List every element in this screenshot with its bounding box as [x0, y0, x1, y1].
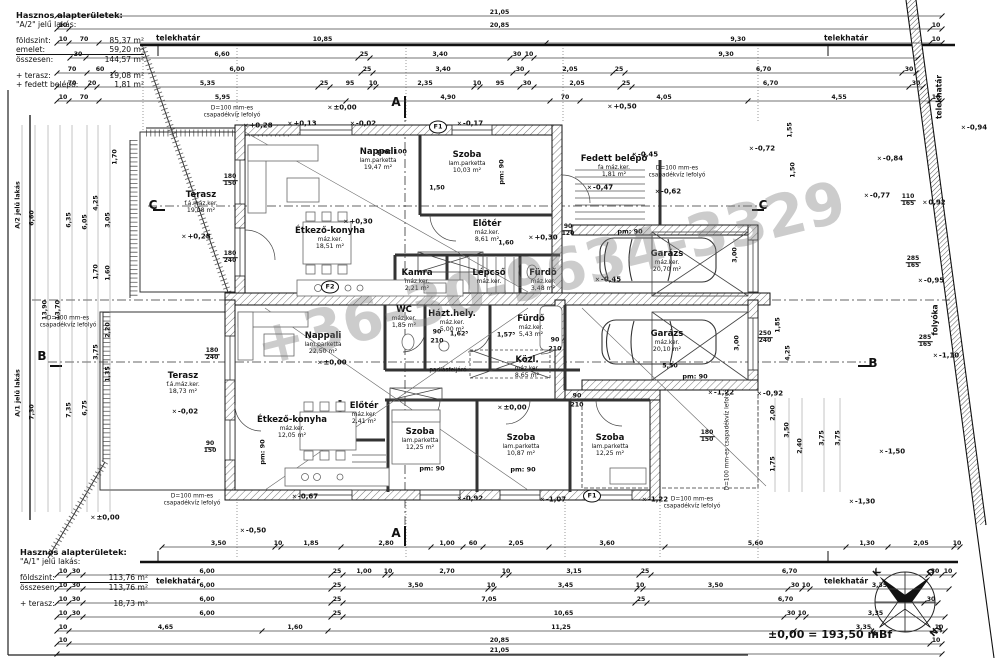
level-marker: ✕-0,17 — [457, 120, 483, 129]
annotation-210: 210 — [548, 345, 561, 352]
annotation-90: 90 — [573, 392, 582, 399]
area-row-value: 113,76 m² — [109, 583, 148, 592]
level-marker: ✕+0,50 — [607, 103, 636, 112]
annotation-1-50: 1,50 — [789, 162, 796, 178]
window-size-label: 90150 — [204, 441, 217, 455]
level-marker: ✕-0,77 — [864, 192, 890, 201]
room-rf: máz.ker. — [257, 426, 327, 433]
room-rf: lam.parketta — [448, 161, 485, 168]
room-ra: 19,47 m² — [359, 165, 396, 172]
room-rn: Előtér — [473, 220, 502, 230]
area-row-label: + terasz: — [20, 599, 55, 608]
annotation-pm-100: pm: 100 — [377, 148, 407, 155]
window-size-label: 180150 — [700, 430, 715, 444]
room-rn: Szoba — [591, 434, 628, 444]
annotation-d-100-mm-es: D=100 mm-es csapadékvíz lefolyó — [204, 105, 261, 118]
level-symbol-icon: ✕ — [327, 105, 332, 112]
annotation-pm-90: pm: 90 — [510, 466, 535, 473]
area-row-value: 18,73 m² — [113, 599, 148, 608]
annotation-1-70: 1,70 — [111, 149, 118, 165]
floor-marker-f1: F1 — [429, 121, 447, 134]
room-label-szoba: Szobalam.parketta10,87 m² — [502, 434, 539, 458]
level-symbol-icon: ✕ — [587, 185, 592, 192]
area-row-value: 59,20 m² — [109, 45, 144, 54]
annotation-telekhat-r: telekhatár — [936, 75, 945, 119]
level-marker: ✕+0,13 — [287, 120, 316, 129]
room-rf: lam.parketta — [502, 444, 539, 451]
annotation-foly-ka: folyóka — [932, 304, 941, 335]
annotation-3-05: 3,05 — [104, 212, 111, 228]
level-symbol-icon: ✕ — [292, 494, 297, 501]
annotation-210: 210 — [570, 401, 583, 408]
annotation-6-75: 6,75 — [81, 400, 88, 416]
level-marker: ✕-0,92 — [757, 390, 783, 399]
room-ra: 18,73 m² — [166, 389, 199, 396]
room-ra: 8,65 m² — [515, 373, 540, 380]
level-symbol-icon: ✕ — [922, 200, 927, 207]
level-marker: ✕-0,02 — [350, 120, 376, 129]
annotation-pm-90: pm: 90 — [498, 159, 505, 184]
level-marker: ✕-1,07 — [540, 496, 566, 505]
room-rn: Szoba — [448, 151, 485, 161]
level-symbol-icon: ✕ — [879, 449, 884, 456]
room-rn: Fürdő — [517, 315, 545, 325]
summary-subtitle: "A/1" jelű lakás: — [20, 557, 170, 566]
area-row-label: földszint: — [16, 36, 51, 45]
level-symbol-icon: ✕ — [243, 123, 248, 130]
annotation-d-100-mm-es: D=100 mm-es csapadékvíz lefolyó — [649, 165, 706, 178]
level-symbol-icon: ✕ — [350, 121, 355, 128]
level-symbol-icon: ✕ — [607, 104, 612, 111]
annotation-d-100-mm-es: D=100 mm-es csapadékvíz lefolyó — [164, 493, 221, 506]
area-extra-row: + fedett belépő:1,81 m² — [16, 80, 144, 89]
room-ra: 8,61 m² — [473, 237, 502, 244]
annotation-13-70: 13,70 — [54, 300, 61, 320]
annotation-3-50: 3,50 — [783, 422, 790, 438]
level-symbol-icon: ✕ — [528, 235, 533, 242]
room-label-szoba: Szobalam.parketta12,25 m² — [401, 428, 438, 452]
annotation-2-40: 2,40 — [796, 438, 803, 454]
annotation-3-75: 3,75 — [818, 430, 825, 446]
window-size-label: 180150 — [223, 174, 238, 188]
room-ra: 5,43 m² — [517, 332, 545, 339]
area-row-label: földszint: — [20, 573, 55, 582]
area-row: összesen:113,76 m² — [20, 583, 148, 592]
area-row-value: 1,81 m² — [114, 80, 144, 89]
annotation-1-60: 1,60 — [498, 239, 514, 246]
room-rf: máz.ker. — [651, 340, 684, 347]
annotation-d-100-mm-es: D=100 mm-es csapadékvíz lefolyó — [664, 496, 721, 509]
level-symbol-icon: ✕ — [708, 390, 713, 397]
area-row-value: 85,37 m² — [109, 36, 144, 45]
annotation-90: 90 — [551, 336, 560, 343]
level-marker: ✕+0,28 — [243, 122, 272, 131]
annotation-2-20: 2,20 — [104, 322, 111, 338]
room-ra: 12,05 m² — [257, 433, 327, 440]
area-row-label: + terasz: — [16, 71, 51, 80]
level-marker: ✕-0,84 — [877, 155, 903, 164]
level-marker: ✕-0,45 — [632, 151, 658, 160]
room-ra: 10,03 m² — [448, 168, 485, 175]
annotation-pm-90: pm: 90 — [419, 465, 444, 472]
annotation-1-50: 1,50 — [429, 184, 445, 191]
floor-marker-f1: F1 — [583, 490, 601, 503]
level-symbol-icon: ✕ — [877, 156, 882, 163]
summary-rows: földszint:85,37 m²emelet:59,20 m²összese… — [16, 36, 166, 64]
annotation-telekhat-r: telekhatár — [824, 578, 868, 587]
room-rn: Étkező-konyha — [295, 227, 365, 237]
room-rf: máz.ker. — [515, 366, 540, 373]
room-ra: 20,10 m² — [651, 347, 684, 354]
level-marker: ✕-0,72 — [749, 145, 775, 154]
area-row-label: + fedett belépő: — [16, 80, 78, 89]
annotation-padl-sfelj-r: padlásfeljáró — [429, 368, 466, 375]
section-letter-b: B — [37, 350, 46, 364]
level-symbol-icon: ✕ — [864, 193, 869, 200]
room-rn: Szoba — [401, 428, 438, 438]
annotation-7-30: 7,30 — [28, 404, 35, 420]
section-letter-c: C — [149, 199, 158, 213]
summary-title: Hasznos alapterületek: — [16, 10, 166, 20]
level-marker: ✕+0,28 — [181, 233, 210, 242]
annotation-4-25: 4,25 — [92, 195, 99, 211]
level-symbol-icon: ✕ — [933, 353, 938, 360]
room-rn: Szoba — [502, 434, 539, 444]
area-extra-row: + terasz:19,08 m² — [16, 71, 144, 80]
level-symbol-icon: ✕ — [961, 125, 966, 132]
annotation-6-05: 6,05 — [81, 214, 88, 230]
frac-bottom: 165 — [918, 343, 933, 349]
area-row: földszint:113,76 m² — [20, 573, 148, 583]
level-marker: ✕0,92 — [922, 199, 945, 208]
level-symbol-icon: ✕ — [497, 405, 502, 412]
area-row-label: összesen: — [20, 583, 57, 592]
annotation-5-50: 5,50 — [662, 362, 678, 369]
level-symbol-icon: ✕ — [749, 146, 754, 153]
section-letter-a: A — [391, 96, 400, 110]
room-rf: lam.parketta — [401, 438, 438, 445]
annotation-a-2-jel-lak-s: A/2 jelű lakás — [14, 181, 21, 229]
room-ra: 1,81 m² — [581, 172, 648, 179]
room-rf: fa máz.ker. — [581, 165, 648, 172]
level-marker: ✕-1,50 — [879, 448, 905, 457]
level-marker: ✕±0,00 — [497, 404, 526, 413]
room-label-terasz: Teraszf.á.máz.ker.18,73 m² — [166, 372, 199, 396]
room-label-terasz: Teraszf.á.máz.ker.19,08 m² — [184, 191, 217, 215]
frac-bottom: 165 — [901, 202, 916, 208]
level-symbol-icon: ✕ — [849, 499, 854, 506]
annotation-6-35: 6,35 — [65, 212, 72, 228]
area-extra-row: + terasz:18,73 m² — [20, 599, 148, 608]
room-label-el-t-r: Előtérmáz.ker.8,61 m² — [473, 220, 502, 244]
window-size-label: 250240 — [758, 331, 773, 345]
room-label-f-rd: Fürdőmáz.ker.5,43 m² — [517, 315, 545, 339]
annotation-telekhat-r: telekhatár — [824, 35, 868, 44]
annotation-2-00: 2,00 — [769, 405, 776, 421]
room-label-tkez-konyha: Étkező-konyhamáz.ker.18,51 m² — [295, 227, 365, 251]
annotation-1-75: 1,75 — [769, 456, 776, 472]
room-rn: Terasz — [166, 372, 199, 382]
area-row: emelet:59,20 m² — [16, 45, 144, 55]
area-row-value: 19,08 m² — [109, 71, 144, 80]
summary-subtitle: "A/2" jelű lakás: — [16, 20, 166, 29]
room-rn: Terasz — [184, 191, 217, 201]
room-rn: Közl. — [515, 356, 540, 366]
summary-extras: + terasz:18,73 m² — [20, 599, 170, 608]
room-label-tkez-konyha: Étkező-konyhamáz.ker.12,05 m² — [257, 416, 327, 440]
annotation-d-100-mm-es: D=100 mm-es csapadékvíz lefolyó — [725, 390, 732, 491]
room-label-k-zl: Közl.máz.ker.8,65 m² — [515, 356, 540, 380]
window-size-label: 180240 — [205, 348, 220, 362]
level-marker: ✕-1,30 — [849, 498, 875, 507]
level-marker: ✕-0,94 — [961, 124, 987, 133]
annotation-1-60: 1,60 — [104, 265, 111, 281]
level-symbol-icon: ✕ — [181, 234, 186, 241]
level-marker: ✕+0,30 — [343, 218, 372, 227]
room-ra: 2,41 m² — [350, 419, 379, 426]
frac-bottom: 165 — [906, 264, 921, 270]
frac-bottom: 150 — [204, 449, 217, 455]
frac-bottom: 240 — [205, 356, 220, 362]
level-symbol-icon: ✕ — [287, 121, 292, 128]
room-ra: 12,25 m² — [401, 445, 438, 452]
level-marker: ✕-0,02 — [172, 408, 198, 417]
level-marker: ✕-0,62 — [655, 188, 681, 197]
level-symbol-icon: ✕ — [918, 278, 923, 285]
level-marker: ✕-0,47 — [587, 184, 613, 193]
area-summary-a2: Hasznos alapterületek: "A/2" jelű lakás:… — [16, 10, 166, 89]
level-symbol-icon: ✕ — [655, 189, 660, 196]
room-label-szoba: Szobalam.parketta12,25 m² — [591, 434, 628, 458]
section-letter-b: B — [868, 357, 877, 371]
room-ra: 18,51 m² — [295, 244, 365, 251]
annotation-1-55: 1,55 — [786, 122, 793, 138]
annotation-1-85: 1,85 — [774, 317, 781, 333]
level-marker: ✕±0,00 — [90, 514, 119, 523]
floorplan-sheet: { "watermark": {"text": "+36-30-9634-332… — [0, 0, 1000, 658]
summary-title: Hasznos alapterületek: — [20, 547, 170, 557]
area-row-label: összesen: — [16, 55, 53, 64]
area-summary-a1: Hasznos alapterületek: "A/1" jelű lakás:… — [20, 547, 170, 608]
room-rf: lam.parketta — [591, 444, 628, 451]
room-rf: máz.ker. — [350, 412, 379, 419]
level-symbol-icon: ✕ — [343, 219, 348, 226]
frac-bottom: 240 — [223, 259, 238, 265]
room-rn: Előtér — [350, 402, 379, 412]
area-row: földszint:85,37 m² — [16, 36, 144, 45]
level-symbol-icon: ✕ — [240, 528, 245, 535]
room-rf: f.á.máz.ker. — [166, 382, 199, 389]
level-symbol-icon: ✕ — [540, 497, 545, 504]
annotation-pm-90: pm: 90 — [259, 439, 266, 464]
level-symbol-icon: ✕ — [632, 152, 637, 159]
level-marker: ✕-1,10 — [933, 352, 959, 361]
level-symbol-icon: ✕ — [172, 409, 177, 416]
room-label-gar-zs: Garázsmáz.ker.20,10 m² — [651, 330, 684, 354]
room-rn: Étkező-konyha — [257, 416, 327, 426]
frac-bottom: 150 — [700, 438, 715, 444]
annotation-7-35: 7,35 — [65, 402, 72, 418]
level-symbol-icon: ✕ — [90, 515, 95, 522]
level-marker: ✕-0,50 — [240, 527, 266, 536]
room-label-el-t-r: Előtérmáz.ker.2,41 m² — [350, 402, 379, 426]
annotation-pm-90: pm: 90 — [682, 373, 707, 380]
area-row-label: emelet: — [16, 45, 45, 54]
annotation-1-35: 1,35 — [104, 366, 111, 382]
annotation-3-00: 3,00 — [733, 335, 740, 351]
section-letter-a: A — [391, 527, 400, 541]
summary-extras: + terasz:19,08 m²+ fedett belépő:1,81 m² — [16, 71, 166, 89]
room-rf: máz.ker. — [517, 325, 545, 332]
level-symbol-icon: ✕ — [457, 496, 462, 503]
summary-rows: földszint:113,76 m²összesen:113,76 m² — [20, 573, 170, 592]
annotation-210: 210 — [430, 337, 443, 344]
annotation-4-25: 4,25 — [784, 345, 791, 361]
room-ra: 19,08 m² — [184, 208, 217, 215]
room-ra: 12,25 m² — [591, 451, 628, 458]
window-size-label: 285165 — [906, 256, 921, 270]
frac-bottom: 150 — [223, 182, 238, 188]
annotation-a-1-jel-lak-s: A/1 jelű lakás — [14, 369, 21, 417]
annotation-13-90: 13,90 — [41, 300, 48, 320]
level-marker: ✕-0,95 — [918, 277, 944, 286]
level-symbol-icon: ✕ — [457, 121, 462, 128]
room-rf: lam.parketta — [359, 158, 396, 165]
area-row-value: 144,57 m² — [105, 55, 144, 64]
window-size-label: 285165 — [918, 335, 933, 349]
room-rf: máz.ker. — [295, 237, 365, 244]
frac-bottom: 240 — [758, 339, 773, 345]
level-symbol-icon: ✕ — [757, 391, 762, 398]
annotation-1-57: 1,57⁵ — [497, 331, 515, 338]
level-symbol-icon: ✕ — [642, 497, 647, 504]
room-ra: 10,87 m² — [502, 451, 539, 458]
annotation-6-60: 6,60 — [28, 210, 35, 226]
window-size-label: 110165 — [901, 194, 916, 208]
level-marker: ✕-0,67 — [292, 493, 318, 502]
window-size-label: 180240 — [223, 251, 238, 265]
room-label-szoba: Szobalam.parketta10,03 m² — [448, 151, 485, 175]
room-rn: Garázs — [651, 330, 684, 340]
annotation-1-70: 1,70 — [92, 264, 99, 280]
level-marker: ✕-0,92 — [457, 495, 483, 504]
annotation-3-75: 3,75 — [92, 344, 99, 360]
room-rf: f.á.máz.ker. — [184, 201, 217, 208]
annotation-3-75: 3,75 — [834, 430, 841, 446]
level-marker: ✕±0,00 — [327, 104, 356, 113]
room-rf: máz.ker. — [473, 230, 502, 237]
area-row-value: 113,76 m² — [109, 573, 148, 582]
area-row: összesen:144,57 m² — [16, 55, 144, 64]
